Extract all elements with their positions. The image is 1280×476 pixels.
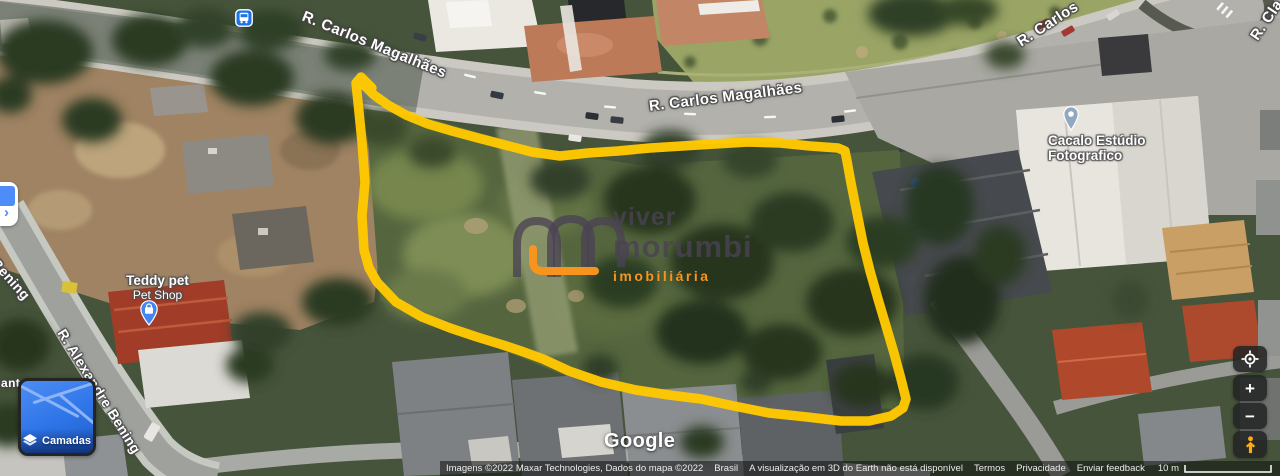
- poi-teddy-pet[interactable]: Teddy pet Pet Shop: [110, 273, 205, 303]
- attribution-bar: Imagens ©2022 Maxar Technologies, Dados …: [440, 461, 1280, 476]
- poi-teddy-pet-title: Teddy pet: [110, 273, 205, 288]
- map-scale: 10 m: [1158, 463, 1272, 474]
- my-location-button[interactable]: [1233, 346, 1267, 372]
- terms-link[interactable]: Termos: [974, 463, 1005, 474]
- poi-cacalo-estudio[interactable]: Cacalo Estúdio Fotografico: [1048, 133, 1146, 163]
- poi-cacalo-title: Cacalo Estúdio: [1048, 133, 1146, 148]
- satellite-imagery[interactable]: [0, 0, 1280, 476]
- attribution-imagery: Imagens ©2022 Maxar Technologies, Dados …: [446, 463, 703, 474]
- zoom-out-icon: −: [1245, 408, 1255, 425]
- place-pin-icon[interactable]: [1063, 106, 1079, 131]
- side-panel-accent: [0, 186, 15, 206]
- attribution-region: Brasil: [714, 463, 738, 474]
- my-location-icon: [1241, 350, 1259, 368]
- scale-label: 10 m: [1158, 463, 1179, 474]
- side-panel-toggle[interactable]: ›: [0, 182, 18, 226]
- google-maps-satellite-view[interactable]: R. Carlos Magalhães R. Carlos Magalhães …: [0, 0, 1280, 476]
- zoom-in-icon: +: [1245, 380, 1255, 397]
- google-logo[interactable]: Google: [604, 430, 675, 453]
- pegman-button[interactable]: [1233, 431, 1267, 458]
- scale-bar-icon: [1184, 464, 1272, 473]
- layers-button-label: Camadas: [42, 435, 91, 447]
- poi-cacalo-title2: Fotografico: [1048, 148, 1146, 163]
- zoom-out-button[interactable]: −: [1233, 403, 1267, 429]
- pegman-icon: [1244, 436, 1257, 454]
- attribution-3d-notice: A visualização em 3D do Earth não está d…: [749, 463, 963, 474]
- zoom-in-button[interactable]: +: [1233, 375, 1267, 401]
- shop-pin-icon[interactable]: [140, 300, 158, 326]
- send-feedback-link[interactable]: Enviar feedback: [1077, 463, 1145, 474]
- thumb-road-line: [57, 392, 96, 433]
- bus-stop-icon[interactable]: [235, 9, 253, 27]
- chevron-right-icon: ›: [4, 204, 9, 221]
- layers-button[interactable]: Camadas: [18, 378, 96, 456]
- privacy-link[interactable]: Privacidade: [1016, 463, 1066, 474]
- layers-icon: [23, 434, 37, 447]
